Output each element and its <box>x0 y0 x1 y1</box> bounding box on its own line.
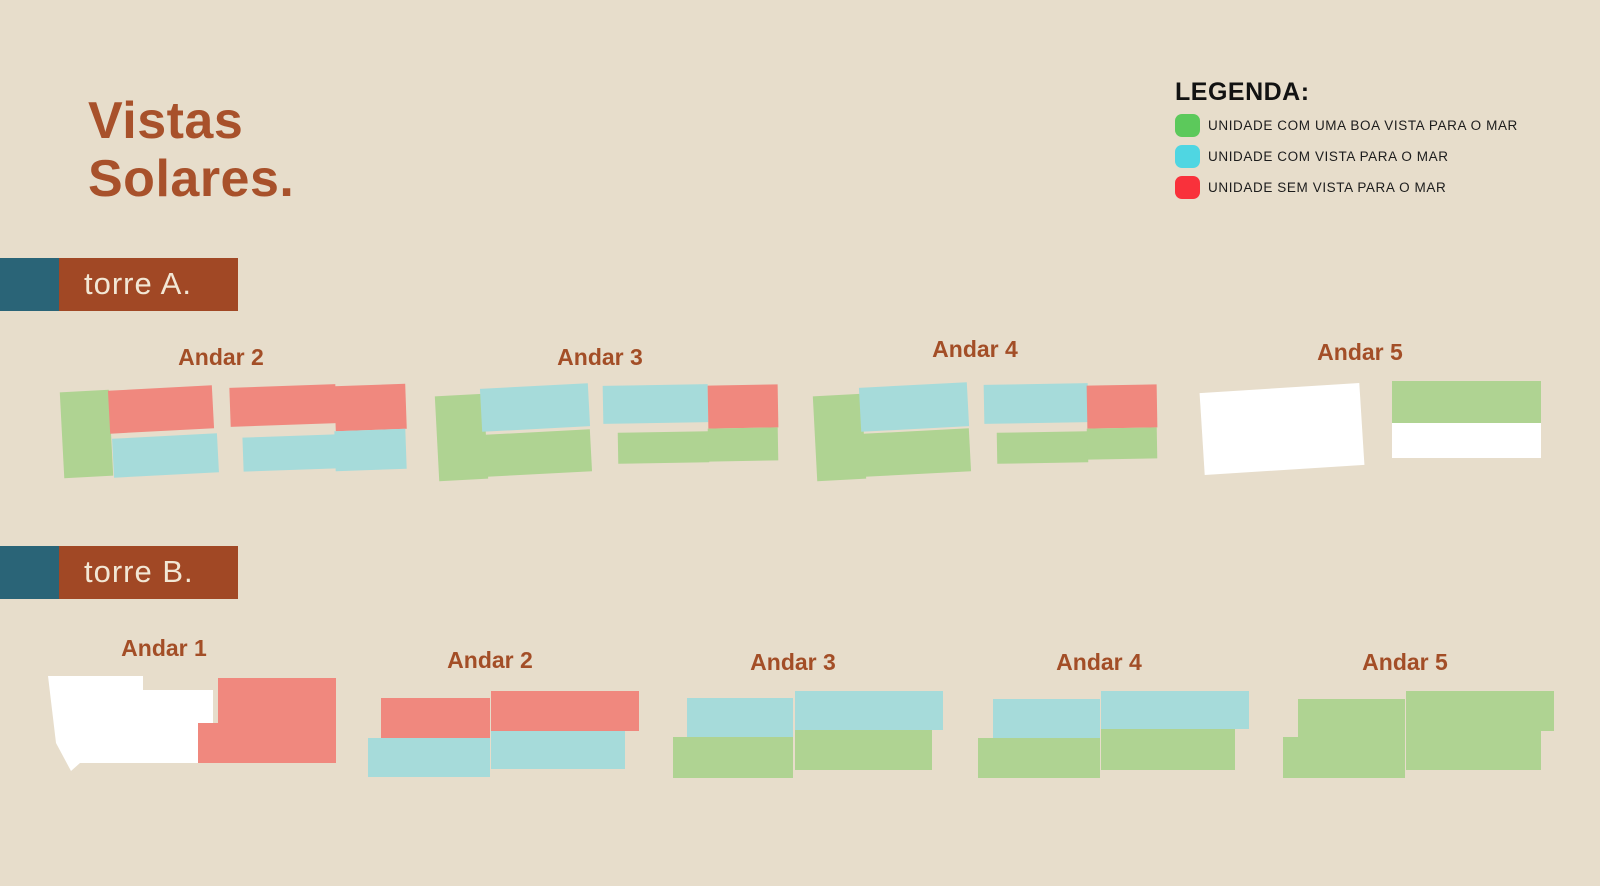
unit-block <box>218 678 336 763</box>
floor-label: Andar 2 <box>178 344 264 371</box>
unit-block <box>491 731 625 769</box>
unit-block <box>1283 737 1405 778</box>
legend-title: LEGENDA: <box>1175 78 1518 107</box>
unit-block <box>1392 381 1541 423</box>
unit-block <box>708 427 779 461</box>
unit-block <box>381 698 490 738</box>
legend-swatch-ok <box>1175 145 1200 168</box>
unit-block <box>1101 729 1235 770</box>
unit-block <box>863 428 971 476</box>
floor-label: Andar 2 <box>447 647 533 674</box>
legend-item: UNIDADE SEM VISTA PARA O MAR <box>1175 176 1518 199</box>
unit-block <box>603 384 709 424</box>
legend-item-label: UNIDADE COM UMA BOA VISTA PARA O MAR <box>1208 118 1518 133</box>
unit-block <box>1101 691 1249 729</box>
floor-label: Andar 3 <box>750 649 836 676</box>
unit-block <box>334 429 406 471</box>
floor-label: Andar 5 <box>1362 649 1448 676</box>
tower-label-bar: torre A. <box>0 258 238 311</box>
tower-bar-accent <box>0 546 59 599</box>
unit-block <box>108 385 214 433</box>
legend-item-label: UNIDADE COM VISTA PARA O MAR <box>1208 149 1449 164</box>
unit-block <box>795 691 943 730</box>
unit-block <box>60 390 113 478</box>
unit-block <box>485 429 592 476</box>
legend-swatch-good <box>1175 114 1200 137</box>
unit-block <box>368 738 490 777</box>
legend-items: UNIDADE COM UMA BOA VISTA PARA O MARUNID… <box>1175 114 1518 199</box>
unit-block <box>242 434 336 471</box>
legend: LEGENDA: UNIDADE COM UMA BOA VISTA PARA … <box>1175 78 1518 199</box>
floor-label: Andar 1 <box>121 635 207 662</box>
unit-block <box>48 676 213 771</box>
unit-block <box>1406 731 1541 770</box>
unit-block <box>229 384 336 427</box>
floor-label: Andar 4 <box>932 336 1018 363</box>
legend-item-label: UNIDADE SEM VISTA PARA O MAR <box>1208 180 1446 195</box>
unit-block <box>673 737 793 778</box>
unit-block <box>984 383 1089 424</box>
unit-block <box>1298 699 1405 737</box>
unit-block <box>687 698 793 737</box>
unit-block <box>334 384 407 431</box>
unit-block <box>1406 691 1554 731</box>
legend-item: UNIDADE COM UMA BOA VISTA PARA O MAR <box>1175 114 1518 137</box>
vistas-solares-infographic: Vistas Solares. LEGENDA: UNIDADE COM UMA… <box>0 0 1600 886</box>
unit-block <box>491 691 639 731</box>
unit-block <box>813 394 866 481</box>
unit-block <box>198 723 218 763</box>
unit-block <box>1087 384 1158 428</box>
unit-block <box>708 384 779 428</box>
unit-block <box>997 431 1089 464</box>
unit-block <box>112 433 219 477</box>
tower-name: torre A. <box>59 258 238 311</box>
floor-label: Andar 4 <box>1056 649 1142 676</box>
unit-block <box>859 382 969 432</box>
floor-label: Andar 5 <box>1317 339 1403 366</box>
tower-label-bar: torre B. <box>0 546 238 599</box>
tower-bar-accent <box>0 258 59 311</box>
unit-block <box>1200 383 1365 475</box>
page-title: Vistas Solares. <box>88 92 358 208</box>
unit-block <box>993 699 1100 738</box>
legend-item: UNIDADE COM VISTA PARA O MAR <box>1175 145 1518 168</box>
unit-block <box>795 730 932 770</box>
legend-swatch-none <box>1175 176 1200 199</box>
unit-block <box>1392 423 1541 458</box>
unit-block <box>978 738 1100 778</box>
floor-label: Andar 3 <box>557 344 643 371</box>
unit-block <box>1087 427 1158 459</box>
unit-block <box>480 383 590 432</box>
tower-name: torre B. <box>59 546 238 599</box>
unit-block <box>618 431 710 464</box>
